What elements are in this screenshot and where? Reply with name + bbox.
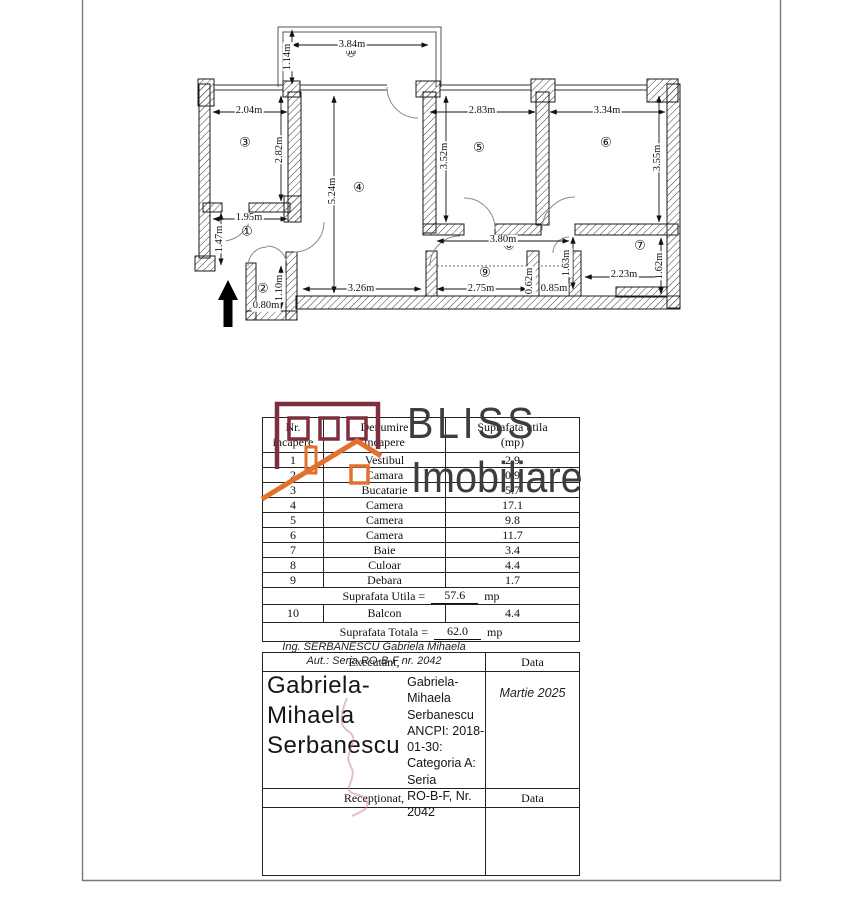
receptionat-empty-cell bbox=[263, 808, 485, 875]
receptionat-label: Recepţionat, bbox=[263, 789, 485, 807]
dim-bath-door: 1.63m bbox=[562, 249, 573, 278]
dim-room5-width: 2.83m bbox=[468, 106, 497, 117]
dim-room4-height: 5.24m bbox=[328, 177, 339, 206]
dim-room2-height: 1.10m bbox=[275, 274, 286, 303]
room-number-1: ① bbox=[241, 225, 253, 238]
logo-word-bliss: BLISS bbox=[407, 399, 537, 449]
room-number-4: ④ bbox=[353, 181, 365, 194]
areas-table: Nr.incapere Denumireincapere Suprafata u… bbox=[262, 417, 580, 642]
dim-corridor-width: 3.80m bbox=[489, 235, 518, 246]
data-label: Data bbox=[485, 653, 579, 671]
data-empty-cell bbox=[485, 808, 579, 875]
dim-room4-width: 3.26m bbox=[347, 284, 376, 295]
dim-room5-height: 3.52m bbox=[440, 142, 451, 171]
table-row: 8 Culoar 4.4 bbox=[263, 557, 579, 572]
room-number-3: ③ bbox=[239, 136, 251, 149]
authorization-line: Aut.: Seria RO-B-F nr. 2042 bbox=[263, 654, 485, 668]
dim-room3-width: 2.04m bbox=[235, 106, 264, 117]
room-number-6: ⑥ bbox=[600, 136, 612, 149]
dim-balcony-width: 3.84m bbox=[338, 40, 367, 51]
room-number-5: ⑤ bbox=[473, 141, 485, 154]
table-row: 5 Camera 9.8 bbox=[263, 512, 579, 527]
dim-bath-height: 1.62m bbox=[655, 252, 666, 281]
signature-table: Executant, Data Ing. SERBANESCU Gabriela… bbox=[262, 652, 580, 876]
utila-value: 57.6 bbox=[431, 588, 478, 604]
date-cell: Martie 2025 bbox=[485, 672, 579, 788]
date-value: Martie 2025 bbox=[499, 672, 565, 700]
dim-debara-width: 2.75m bbox=[467, 284, 496, 295]
dim-room1-height: 1.47m bbox=[215, 225, 226, 254]
dim-room1-width: 1.95m bbox=[235, 213, 264, 224]
dim-room3-height: 2.82m bbox=[275, 136, 286, 165]
dim-room6-height: 3.55m bbox=[653, 144, 664, 173]
document-page: ① ② ③ ④ ⑤ ⑥ ⑦ ⑧ ⑨ ⑩ 3.84m 1.14m 2.04m 2.… bbox=[0, 0, 863, 900]
table-row: 9 Debara 1.7 bbox=[263, 572, 579, 587]
dim-bath-width: 2.23m bbox=[610, 270, 639, 281]
balcony-outline bbox=[278, 27, 441, 87]
entrance-arrow-icon bbox=[218, 280, 238, 327]
logo-word-imobiliare: Imobiliare bbox=[411, 453, 583, 503]
room-number-2: ② bbox=[257, 282, 269, 295]
door-arcs bbox=[222, 87, 575, 266]
suprafata-utila-row: Suprafata Utila = 57.6 mp bbox=[263, 587, 579, 604]
room-number-9: ⑨ bbox=[479, 266, 491, 279]
table-row: 7 Baie 3.4 bbox=[263, 542, 579, 557]
engineer-name-line: Ing. SERBANESCU Gabriela Mihaela bbox=[263, 640, 485, 654]
executant-cell: Ing. SERBANESCU Gabriela Mihaela Aut.: S… bbox=[263, 672, 485, 788]
dim-room2-width: 0.80m bbox=[252, 301, 281, 312]
room-number-7: ⑦ bbox=[634, 239, 646, 252]
dim-debara-depth: 0.62m bbox=[525, 267, 536, 296]
dim-room6-width: 3.34m bbox=[593, 106, 622, 117]
totala-value: 62.0 bbox=[434, 624, 481, 640]
dim-balcony-depth: 1.14m bbox=[283, 43, 294, 72]
dim-niche-width: 0.85m bbox=[540, 284, 569, 295]
table-row: 6 Camera 11.7 bbox=[263, 527, 579, 542]
header-nr: Nr.incapere bbox=[263, 418, 323, 452]
suprafata-totala-row: Suprafata Totala = 62.0 mp bbox=[263, 622, 579, 641]
data-label-2: Data bbox=[485, 789, 579, 807]
balcony-row: 10 Balcon 4.4 bbox=[263, 604, 579, 622]
